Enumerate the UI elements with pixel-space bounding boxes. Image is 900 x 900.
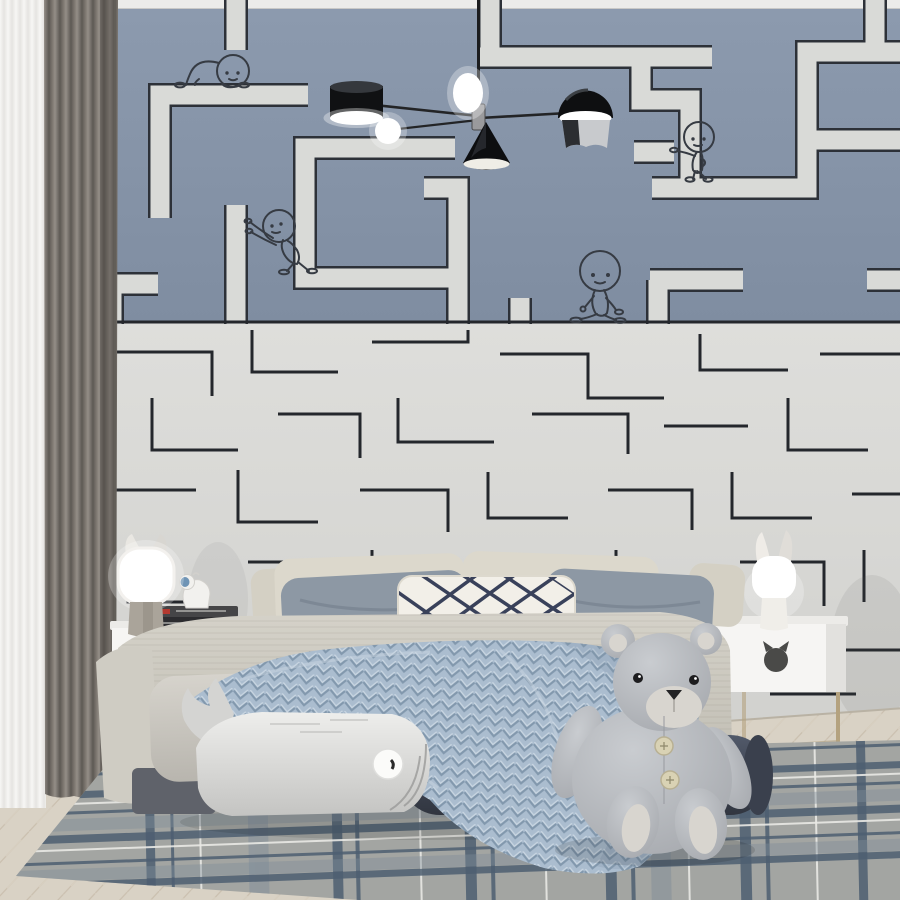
bear-ear-left-inner	[609, 634, 627, 652]
lamp-drum-shade	[324, 81, 390, 128]
lamp-left-glow	[108, 540, 184, 612]
lamp-dome-shade	[558, 90, 613, 148]
scene-canvas	[0, 0, 900, 900]
ceiling	[0, 0, 900, 9]
bear-eye-right	[689, 675, 699, 685]
lamp-globe-upper	[453, 73, 483, 113]
bear-ear-right-inner	[698, 633, 715, 650]
bear-eye-left	[633, 673, 643, 683]
bedroom-photo	[0, 0, 900, 900]
nightstand-right-side-shade	[826, 624, 846, 692]
whale-eye	[373, 749, 403, 779]
sheer-curtain	[0, 0, 46, 808]
